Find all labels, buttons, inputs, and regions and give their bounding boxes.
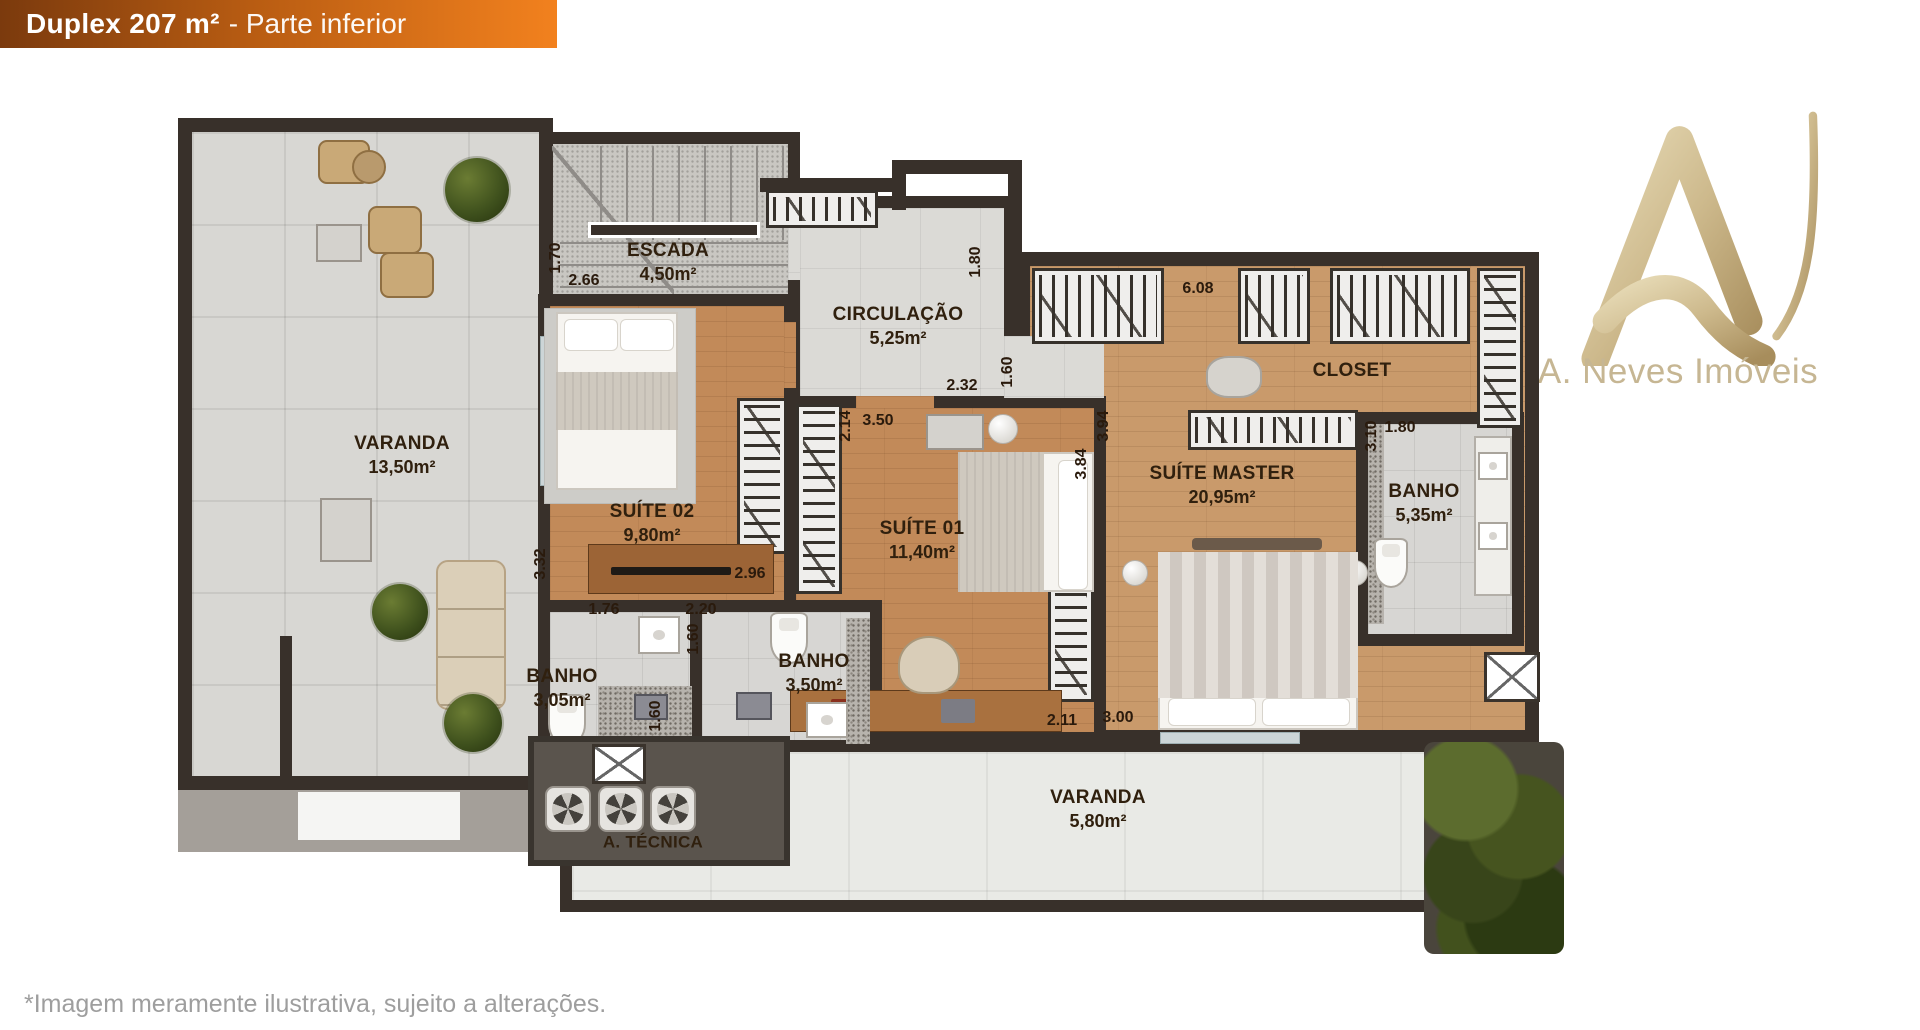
wardrobe-suite02: [737, 398, 787, 554]
sofa: [436, 560, 506, 710]
label-varanda-esquerda: VARANDA 13,50m²: [354, 432, 450, 478]
pillow: [564, 319, 618, 351]
label-suite-master: SUÍTE MASTER 20,95m²: [1149, 462, 1294, 508]
pillow: [1168, 698, 1256, 726]
plant: [372, 584, 428, 640]
round-table: [352, 150, 386, 184]
sink: [806, 702, 848, 738]
granite-strip: [1368, 424, 1384, 624]
banner-title: Duplex 207 m²: [26, 8, 220, 40]
passage-to-closet: [1004, 336, 1104, 398]
label-varanda-inferior: VARANDA 5,80m²: [1050, 786, 1146, 832]
brand-logo-monogram-icon: [1575, 86, 1825, 366]
floorplan-page: Duplex 207 m² - Parte inferior A. Neves …: [0, 0, 1920, 1030]
lamp: [988, 414, 1018, 444]
wardrobe-closet-right: [1477, 268, 1523, 428]
sink: [1478, 522, 1508, 550]
dim-banho-master-height: 3.10: [1363, 420, 1381, 451]
dim-circulacao-height: 1.80: [967, 246, 985, 277]
dim-escada-width: 2.66: [568, 272, 599, 290]
varanda-glass-door-master: [1160, 732, 1300, 744]
wardrobe-suite01: [796, 404, 842, 594]
monitor: [941, 699, 975, 723]
side-table: [316, 224, 362, 262]
dim-banho01-width: 2.20: [685, 601, 716, 619]
nightstand: [926, 414, 984, 450]
wall-segment: [280, 636, 292, 790]
dim-suite02-width: 2.96: [734, 565, 765, 583]
dim-banho02-height: 1.60: [647, 700, 665, 731]
label-area-tecnica: A. TÉCNICA: [603, 831, 703, 852]
armchair: [368, 206, 422, 254]
duvet: [556, 372, 678, 430]
label-suite02: SUÍTE 02 9,80m²: [610, 500, 695, 546]
dim-banho01-height: 1.60: [685, 623, 703, 654]
exhaust-fan-icon: [650, 786, 696, 832]
duvet: [958, 452, 1044, 592]
exterior-notch: [298, 792, 460, 840]
dim-suite01-top-width: 3.50: [862, 412, 893, 430]
exhaust-fan-icon: [598, 786, 644, 832]
bed-suite02: [556, 312, 678, 490]
plant: [444, 694, 502, 752]
shower-floor: [846, 618, 870, 744]
dim-escada-height: 1.70: [547, 242, 565, 273]
plant: [445, 158, 509, 222]
label-circulacao: CIRCULAÇÃO 5,25m²: [833, 303, 964, 349]
bed-bench: [1192, 538, 1322, 550]
fan-blades-icon: [657, 793, 689, 825]
dim-suite01-height: 3.84: [1073, 448, 1091, 479]
dim-corredor-height: 1.60: [999, 356, 1017, 387]
dim-closet-width: 6.08: [1182, 280, 1213, 298]
bed-master: [1158, 552, 1358, 730]
door-opening-suite02: [784, 322, 796, 388]
dim-banho02-width: 1.76: [588, 601, 619, 619]
sink: [1478, 452, 1508, 480]
pillow: [620, 319, 674, 351]
title-banner: Duplex 207 m² - Parte inferior: [0, 0, 557, 48]
label-banho-suite01: BANHO 3,50m²: [778, 650, 849, 696]
wall-segment: [892, 160, 1022, 174]
tv: [611, 567, 731, 575]
door-opening-suite01: [856, 396, 934, 408]
pillow: [1262, 698, 1350, 726]
wardrobe-suite02-top: [766, 190, 878, 228]
duct-shaft: [592, 744, 646, 784]
wardrobe-closet-1: [1032, 268, 1164, 344]
dim-suite01-door-height: 2.14: [837, 410, 855, 441]
label-escada: ESCADA 4,50m²: [627, 239, 709, 285]
label-suite01: SUÍTE 01 11,40m²: [880, 517, 965, 563]
wardrobe-closet-2: [1238, 268, 1310, 344]
wardrobe-master: [1188, 410, 1358, 450]
lamp: [1122, 560, 1148, 586]
fan-blades-icon: [552, 793, 584, 825]
toilet: [1374, 538, 1408, 588]
wall-segment: [1008, 160, 1022, 266]
wardrobe-suite01-right: [1048, 586, 1094, 702]
pouf: [1206, 356, 1262, 398]
banner-subtitle: - Parte inferior: [229, 8, 406, 40]
label-closet: CLOSET: [1313, 359, 1392, 383]
disclaimer-text: *Imagem meramente ilustrativa, sujeito a…: [24, 990, 606, 1019]
armchair: [380, 252, 434, 298]
dim-suite01-bottom-width: 2.11: [1047, 712, 1077, 730]
dim-suite02-height: 3.32: [532, 548, 550, 579]
wardrobe-closet-3: [1330, 268, 1470, 344]
dim-circulacao-width: 2.32: [946, 377, 977, 395]
exhaust-fan-icon: [545, 786, 591, 832]
office-chair: [898, 636, 960, 694]
shower-control: [736, 692, 772, 720]
dim-banho-master-width: 1.80: [1384, 419, 1415, 437]
dim-master-bottom-width: 3.00: [1102, 709, 1133, 727]
label-banho-suite02: BANHO 3,05m²: [526, 665, 597, 711]
fan-blades-icon: [605, 793, 637, 825]
sink: [638, 616, 680, 654]
label-banho-master: BANHO 5,35m²: [1388, 480, 1459, 526]
shower-box: [1484, 652, 1540, 702]
stair-railing: [588, 222, 760, 238]
garden-tree: [1424, 742, 1564, 954]
duvet: [1158, 552, 1358, 698]
low-table: [320, 498, 372, 562]
dim-master-left-height: 3.94: [1095, 410, 1113, 441]
